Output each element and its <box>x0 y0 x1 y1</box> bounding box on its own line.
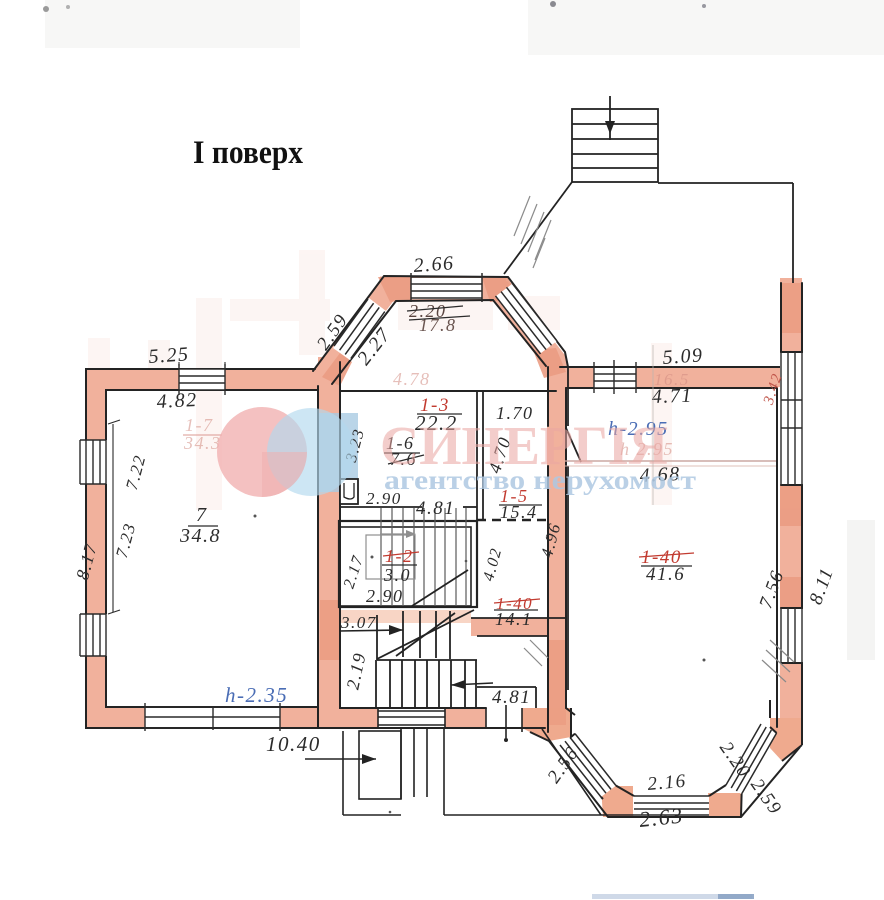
svg-text:1-3: 1-3 <box>420 395 450 416</box>
svg-text:2.16: 2.16 <box>647 771 688 795</box>
svg-text:5.09: 5.09 <box>662 344 704 369</box>
svg-text:34.8: 34.8 <box>179 525 221 547</box>
svg-text:10.40: 10.40 <box>266 732 321 756</box>
svg-text:5.25: 5.25 <box>148 343 190 368</box>
svg-text:4.78: 4.78 <box>393 369 431 389</box>
svg-text:3.07: 3.07 <box>340 613 377 632</box>
svg-text:34.3: 34.3 <box>183 433 222 453</box>
svg-text:І поверх: І поверх <box>193 135 303 171</box>
svg-text:1-40: 1-40 <box>641 547 682 568</box>
svg-text:4.82: 4.82 <box>156 389 198 413</box>
svg-text:1-40: 1-40 <box>496 594 533 613</box>
svg-text:2.66: 2.66 <box>413 252 455 277</box>
svg-text:16.5: 16.5 <box>654 370 690 389</box>
svg-text:7: 7 <box>196 504 208 526</box>
svg-text:2.63: 2.63 <box>638 802 685 832</box>
svg-text:1-2: 1-2 <box>385 546 414 566</box>
svg-text:2.90: 2.90 <box>366 586 404 606</box>
svg-text:4.81: 4.81 <box>492 687 531 708</box>
svg-text:агентство нерухомост: агентство нерухомост <box>384 465 696 495</box>
svg-text:h-2.35: h-2.35 <box>225 683 288 707</box>
svg-text:3.0: 3.0 <box>383 565 411 585</box>
svg-text:1-7: 1-7 <box>185 415 214 435</box>
svg-text:4.81: 4.81 <box>416 498 455 519</box>
